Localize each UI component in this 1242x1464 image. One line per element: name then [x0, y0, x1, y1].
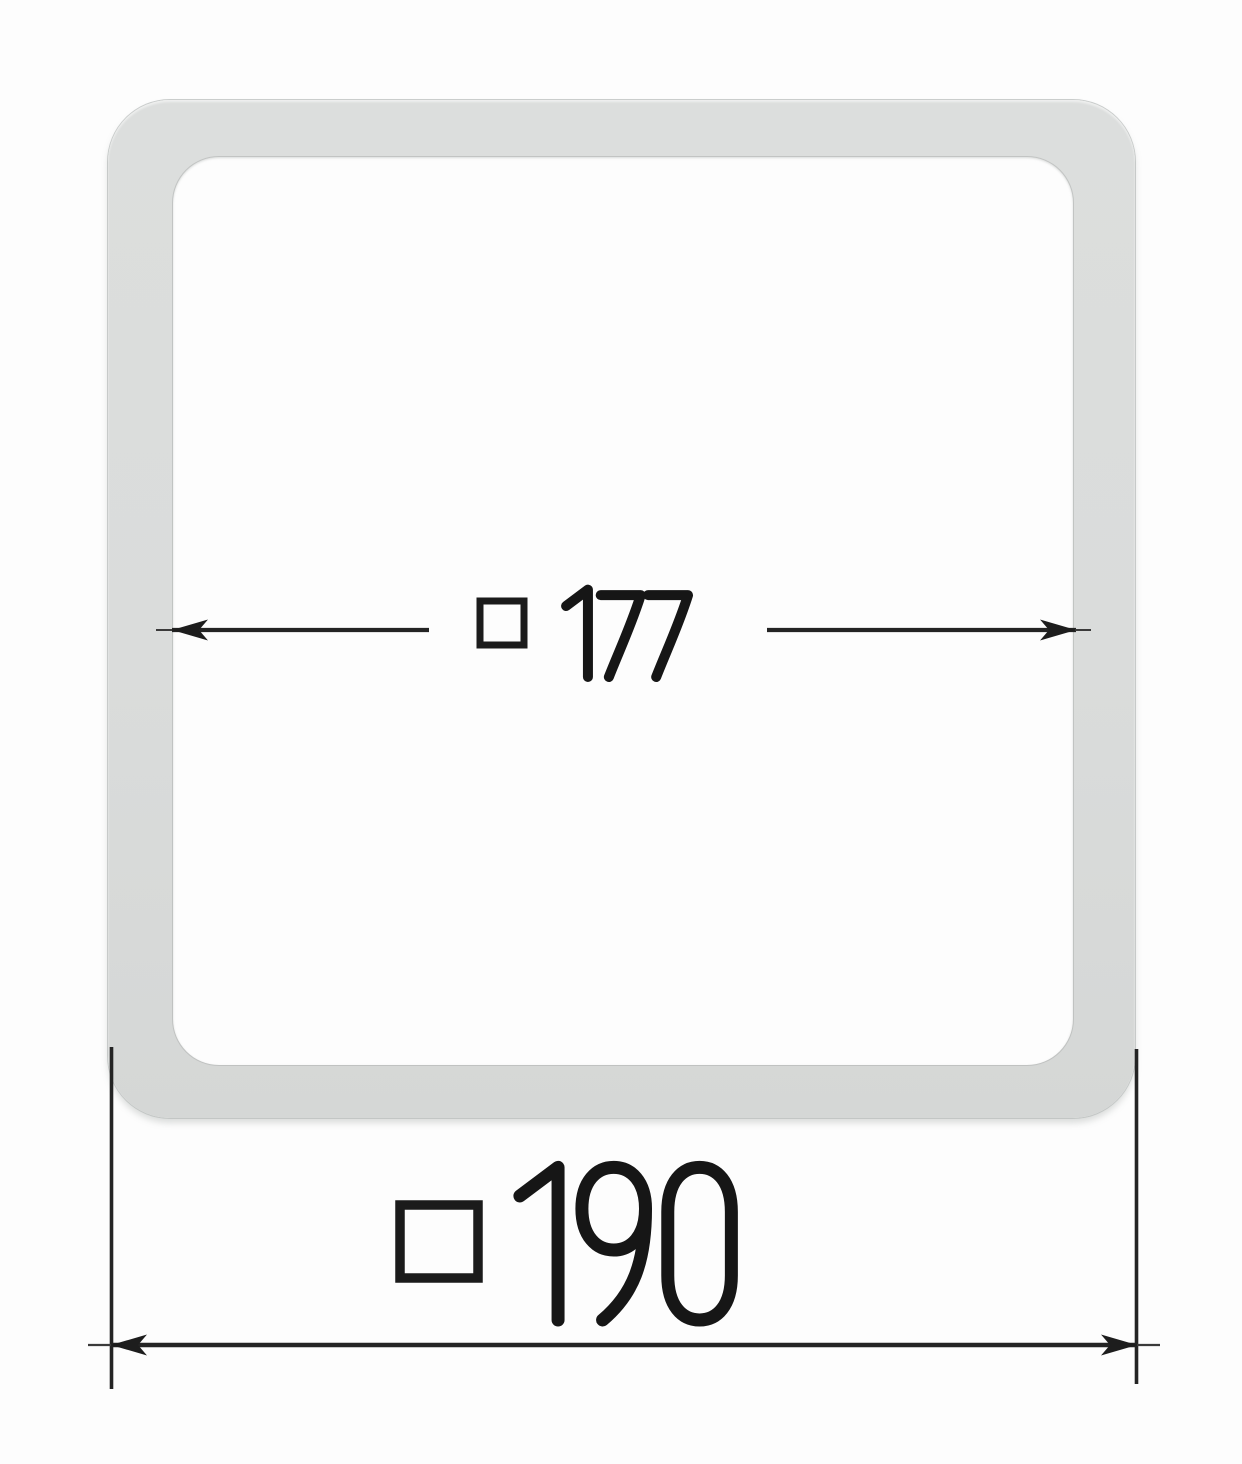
outer-dim-right-arrowhead-icon — [1101, 1335, 1137, 1356]
dim-digit-0 — [668, 1167, 732, 1320]
dim-digit-9 — [582, 1167, 646, 1320]
outer-dim-square-symbol-icon — [400, 1205, 478, 1278]
square-profile-inner-opening — [173, 157, 1073, 1065]
outer-dim-left-arrowhead-icon — [111, 1335, 147, 1356]
technical-drawing-canvas — [0, 0, 1242, 1464]
outer-dim-value-text — [520, 1167, 731, 1320]
dim-digit-1 — [520, 1167, 558, 1320]
square-profile-outer — [108, 100, 1135, 1118]
